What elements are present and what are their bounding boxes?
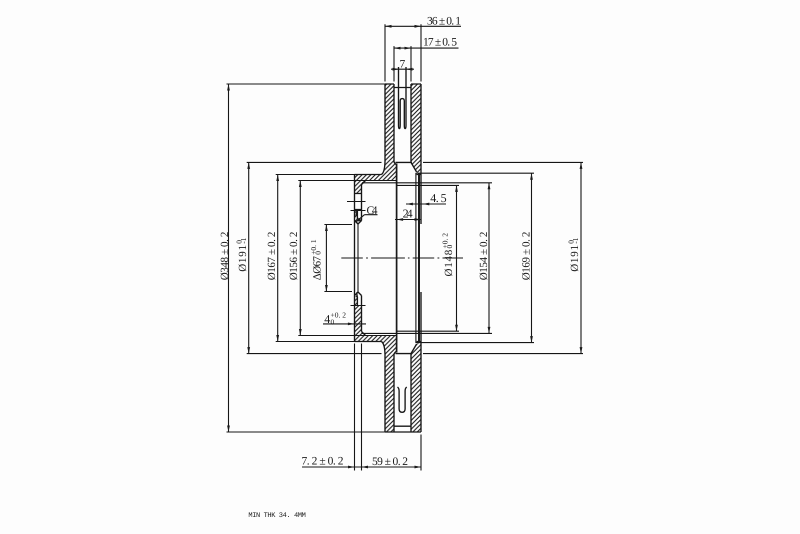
svg-text:Ø191: Ø191 — [237, 245, 249, 272]
svg-text:36 ± 0. 1: 36 ± 0. 1 — [427, 16, 461, 28]
svg-text:Ø348 ± 0. 2: Ø348 ± 0. 2 — [219, 232, 231, 281]
svg-text:Ø156 ± 0. 2: Ø156 ± 0. 2 — [288, 232, 300, 281]
svg-text:59 ± 0. 2: 59 ± 0. 2 — [372, 456, 408, 468]
svg-text:0: 0 — [314, 251, 323, 255]
svg-text:Ø191: Ø191 — [569, 245, 581, 272]
svg-text:-1: -1 — [239, 237, 248, 243]
svg-text:7: 7 — [400, 59, 406, 71]
svg-text:Ø169 ± 0. 2: Ø169 ± 0. 2 — [521, 232, 533, 281]
svg-text:4: 4 — [324, 312, 330, 326]
svg-text:24: 24 — [403, 207, 413, 221]
svg-text:7. 2 ± 0. 2: 7. 2 ± 0. 2 — [302, 456, 344, 468]
svg-text:Ø148: Ø148 — [443, 249, 455, 276]
svg-text:MIN THK 34. 4MM: MIN THK 34. 4MM — [248, 512, 305, 520]
svg-text:0: 0 — [331, 318, 335, 327]
svg-text:Ø154 ± 0. 2: Ø154 ± 0. 2 — [478, 232, 490, 281]
svg-text:4. 5: 4. 5 — [430, 191, 446, 205]
svg-text:-1: -1 — [571, 237, 580, 243]
svg-text:C4: C4 — [367, 205, 378, 217]
svg-text:Ø167 ± 0. 2: Ø167 ± 0. 2 — [266, 232, 278, 281]
svg-text:17 ± 0. 5: 17 ± 0. 5 — [423, 37, 457, 49]
svg-text:0: 0 — [445, 245, 454, 249]
svg-text:ΔØ67: ΔØ67 — [312, 255, 324, 280]
